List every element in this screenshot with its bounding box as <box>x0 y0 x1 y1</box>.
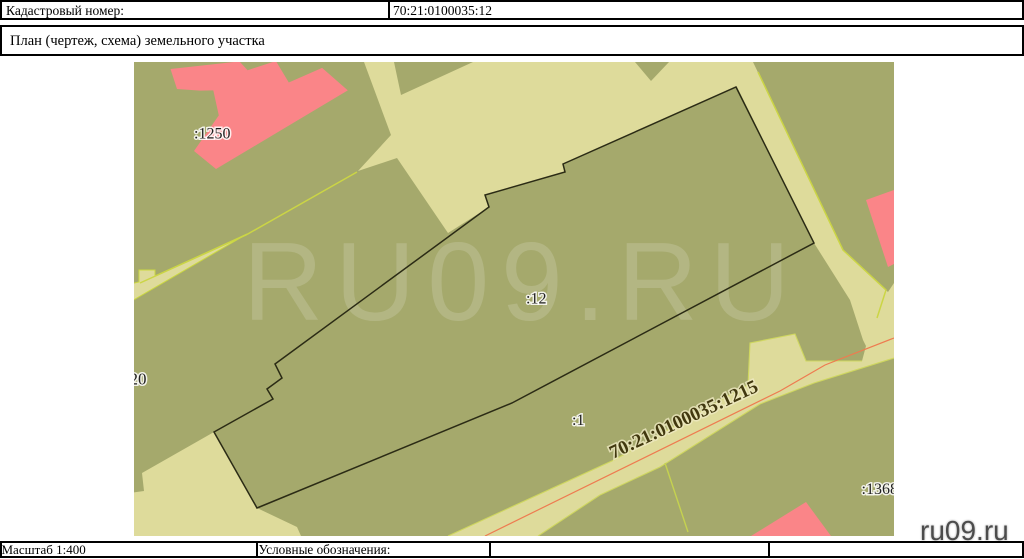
svg-text::12: :12 <box>526 291 546 308</box>
svg-text::1368: :1368 <box>862 481 895 498</box>
svg-text:20: 20 <box>134 370 147 389</box>
svg-text::1250: :1250 <box>194 126 230 143</box>
svg-text::1: :1 <box>572 412 584 429</box>
